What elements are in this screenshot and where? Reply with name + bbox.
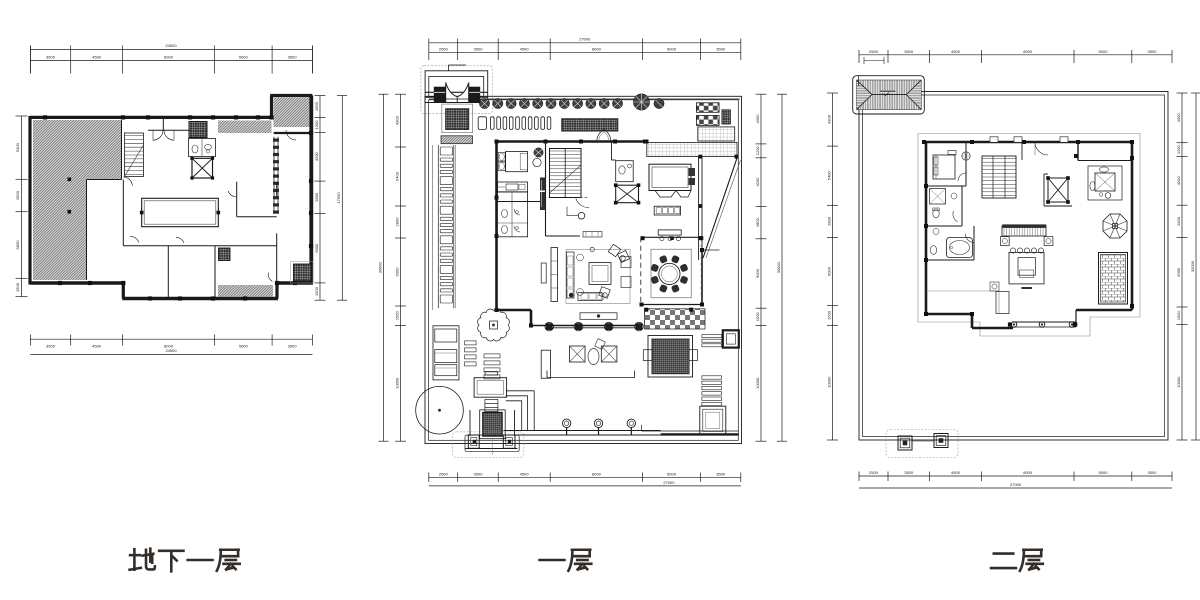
svg-text:5400: 5400 xyxy=(15,142,20,152)
svg-text:1200: 1200 xyxy=(755,146,760,156)
svg-text:6000: 6000 xyxy=(394,267,399,277)
svg-text:2800: 2800 xyxy=(1176,216,1181,226)
svg-text:1500: 1500 xyxy=(394,310,399,320)
svg-text:3500: 3500 xyxy=(904,470,914,475)
svg-text:5000: 5000 xyxy=(667,471,677,476)
svg-text:2500: 2500 xyxy=(869,49,879,54)
svg-text:4200: 4200 xyxy=(755,177,760,187)
svg-text:3500: 3500 xyxy=(288,344,298,349)
svg-text:10000: 10000 xyxy=(394,377,399,389)
svg-text:2800: 2800 xyxy=(394,217,399,227)
svg-text:2500: 2500 xyxy=(439,471,449,476)
svg-text:1500: 1500 xyxy=(15,282,20,292)
svg-text:10000: 10000 xyxy=(826,376,831,388)
svg-text:6000: 6000 xyxy=(755,268,760,278)
svg-text:3500: 3500 xyxy=(474,471,484,476)
svg-text:2800: 2800 xyxy=(314,192,319,202)
svg-text:10000: 10000 xyxy=(755,377,760,389)
svg-text:3500: 3500 xyxy=(904,49,914,54)
svg-text:1500: 1500 xyxy=(755,312,760,322)
svg-text:4500: 4500 xyxy=(520,46,530,51)
svg-text:5000: 5000 xyxy=(667,46,677,51)
svg-text:30000: 30000 xyxy=(1190,260,1195,272)
svg-text:8000: 8000 xyxy=(592,471,602,476)
svg-text:4300: 4300 xyxy=(826,114,831,124)
svg-text:4500: 4500 xyxy=(92,55,102,60)
svg-text:8000: 8000 xyxy=(1023,49,1033,54)
svg-text:5400: 5400 xyxy=(826,170,831,180)
svg-text:3500: 3500 xyxy=(1148,470,1158,475)
svg-text:24500: 24500 xyxy=(165,43,177,48)
svg-text:2500: 2500 xyxy=(439,46,449,51)
svg-text:4200: 4200 xyxy=(314,152,319,162)
svg-text:27000: 27000 xyxy=(579,37,591,42)
svg-text:3500: 3500 xyxy=(46,344,56,349)
svg-text:3500: 3500 xyxy=(288,55,298,60)
svg-text:4500: 4500 xyxy=(92,344,102,349)
svg-text:4300: 4300 xyxy=(394,115,399,125)
svg-text:5000: 5000 xyxy=(239,55,249,60)
svg-text:10000: 10000 xyxy=(1176,376,1181,388)
svg-text:2800: 2800 xyxy=(826,216,831,226)
svg-text:4500: 4500 xyxy=(520,471,530,476)
svg-text:2800: 2800 xyxy=(755,217,760,227)
svg-text:1500: 1500 xyxy=(314,286,319,296)
svg-text:5000: 5000 xyxy=(1099,470,1109,475)
svg-text:3500: 3500 xyxy=(46,55,56,60)
svg-text:3500: 3500 xyxy=(1148,49,1158,54)
svg-text:8000: 8000 xyxy=(164,344,174,349)
svg-text:2500: 2500 xyxy=(869,470,879,475)
svg-text:1500: 1500 xyxy=(826,310,831,320)
svg-text:30000: 30000 xyxy=(377,261,382,273)
svg-text:4500: 4500 xyxy=(951,49,961,54)
svg-text:4300: 4300 xyxy=(755,114,760,124)
svg-text:3500: 3500 xyxy=(716,471,726,476)
svg-text:3500: 3500 xyxy=(716,46,726,51)
svg-text:6000: 6000 xyxy=(314,243,319,253)
svg-text:4300: 4300 xyxy=(1176,113,1181,123)
svg-text:27000: 27000 xyxy=(663,480,675,485)
svg-text:5800: 5800 xyxy=(15,240,20,250)
svg-text:8000: 8000 xyxy=(164,55,174,60)
svg-text:6000: 6000 xyxy=(826,266,831,276)
svg-text:17600: 17600 xyxy=(336,192,341,204)
svg-text:8000: 8000 xyxy=(592,46,602,51)
svg-text:1200: 1200 xyxy=(1176,144,1181,154)
svg-text:8000: 8000 xyxy=(1023,470,1033,475)
svg-text:4500: 4500 xyxy=(951,470,961,475)
svg-text:5400: 5400 xyxy=(394,171,399,181)
svg-text:1900: 1900 xyxy=(314,101,319,111)
svg-text:2800: 2800 xyxy=(15,190,20,200)
svg-text:1500: 1500 xyxy=(1176,310,1181,320)
svg-text:4200: 4200 xyxy=(1176,176,1181,186)
svg-text:24500: 24500 xyxy=(165,348,177,353)
svg-text:5000: 5000 xyxy=(1099,49,1109,54)
svg-text:30000: 30000 xyxy=(776,261,781,273)
svg-text:27000: 27000 xyxy=(1010,482,1022,487)
svg-text:3500: 3500 xyxy=(474,46,484,51)
svg-text:1300: 1300 xyxy=(314,120,319,130)
svg-text:5000: 5000 xyxy=(239,344,249,349)
svg-text:6000: 6000 xyxy=(1176,267,1181,277)
